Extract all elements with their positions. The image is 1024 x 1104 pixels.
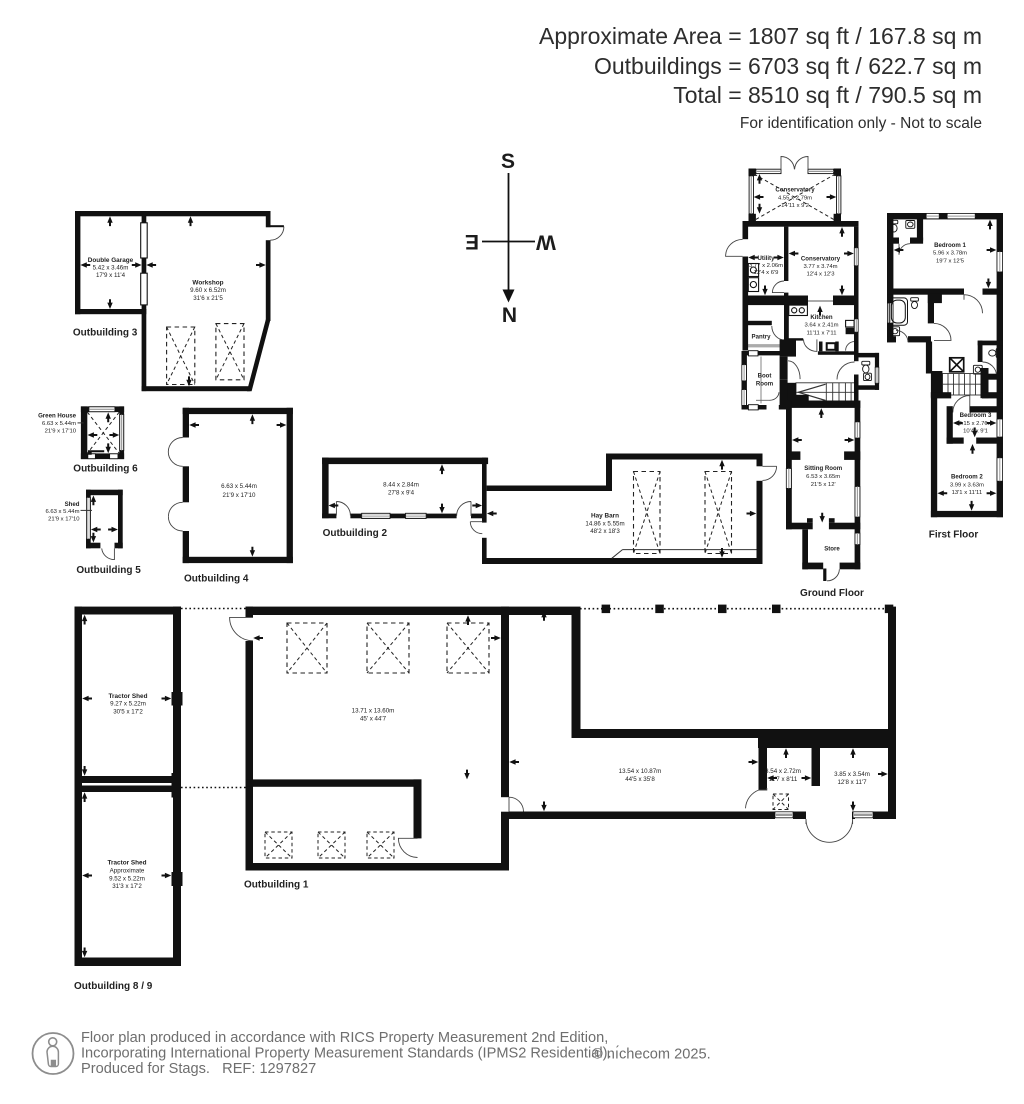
svg-text:3.85 x 3.54m: 3.85 x 3.54m (834, 771, 870, 778)
svg-text:Green House: Green House (38, 413, 77, 420)
svg-text:30'5 x 17'2: 30'5 x 17'2 (113, 708, 143, 715)
svg-text:Approximate: Approximate (110, 867, 145, 874)
svg-text:11'11 x 7'11: 11'11 x 7'11 (806, 330, 836, 336)
svg-text:13.54 x 10.87m: 13.54 x 10.87m (619, 768, 662, 775)
svg-text:N: N (502, 304, 517, 327)
svg-text:21'9 x 17'10: 21'9 x 17'10 (223, 492, 257, 499)
svg-text:9.60 x 6.52m: 9.60 x 6.52m (190, 287, 226, 294)
svg-text:W: W (536, 231, 556, 254)
svg-text:S: S (501, 150, 515, 173)
svg-text:48'2 x 18'3: 48'2 x 18'3 (590, 528, 620, 535)
svg-text:Tractor Shed: Tractor Shed (108, 693, 147, 700)
svg-text:31'6 x 21'5: 31'6 x 21'5 (193, 295, 223, 302)
svg-text:Produced for Stags. REF: 129: Produced for Stags. REF: 1297827 (81, 1061, 316, 1077)
svg-text:Conservatory: Conservatory (801, 255, 841, 262)
svg-text:45' x 44'7: 45' x 44'7 (360, 716, 387, 723)
svg-text:Conservatory: Conservatory (775, 187, 815, 194)
svg-text:Workshop: Workshop (192, 280, 223, 287)
svg-text:17'9 x 11'4: 17'9 x 11'4 (96, 272, 126, 279)
svg-text:Boot: Boot (758, 373, 772, 380)
svg-text:Outbuilding 3: Outbuilding 3 (73, 328, 138, 339)
svg-text:Outbuilding 2: Outbuilding 2 (323, 528, 388, 539)
svg-text:Approximate Area = 1807 sq ft: Approximate Area = 1807 sq ft / 167.8 sq… (539, 23, 982, 49)
svg-text:Total = 8510 sq ft / 790.5 sq: Total = 8510 sq ft / 790.5 sq m (673, 82, 982, 108)
svg-text:9.27 x 5.22m: 9.27 x 5.22m (110, 701, 146, 708)
svg-text:3.99 x 3.63m: 3.99 x 3.63m (950, 482, 984, 488)
svg-text:Outbuilding 6: Outbuilding 6 (73, 463, 138, 474)
svg-text:4.55 x 2.79m: 4.55 x 2.79m (778, 195, 812, 201)
svg-text:Outbuilding 1: Outbuilding 1 (244, 880, 309, 891)
svg-text:Store: Store (824, 546, 840, 553)
svg-text:First Floor: First Floor (929, 530, 979, 541)
svg-text:Sitting Room: Sitting Room (804, 465, 842, 472)
svg-text:6.63 x 5.44m: 6.63 x 5.44m (221, 483, 257, 490)
svg-text:12'4 x 6'9: 12'4 x 6'9 (754, 270, 779, 276)
svg-text:© nı́checom 2025.: © nı́checom 2025. (592, 1046, 711, 1063)
svg-text:Bedroom 1: Bedroom 1 (934, 242, 966, 249)
svg-text:Tractor Shed: Tractor Shed (107, 860, 146, 867)
svg-text:Double Garage: Double Garage (88, 257, 134, 264)
svg-text:Ground Floor: Ground Floor (800, 588, 864, 599)
svg-text:Incorporating International Pr: Incorporating International Property Mea… (81, 1046, 612, 1062)
svg-text:3.77 x 2.06m: 3.77 x 2.06m (749, 263, 783, 269)
svg-text:27'8 x 9'4: 27'8 x 9'4 (388, 490, 415, 497)
svg-text:Shed: Shed (65, 501, 80, 508)
svg-text:Bedroom 2: Bedroom 2 (951, 474, 983, 481)
svg-text:21'9 x 17'10: 21'9 x 17'10 (48, 516, 80, 522)
svg-text:21'9 x 17'10: 21'9 x 17'10 (45, 428, 77, 434)
svg-text:3.54 x 2.72m: 3.54 x 2.72m (765, 768, 801, 775)
svg-text:19'7 x 12'5: 19'7 x 12'5 (936, 258, 965, 264)
svg-text:12'4 x 12'3: 12'4 x 12'3 (806, 271, 835, 277)
svg-text:For identification only - Not: For identification only - Not to scale (740, 115, 982, 132)
svg-text:3.77 x 3.74m: 3.77 x 3.74m (803, 264, 837, 270)
svg-text:31'3 x 17'2: 31'3 x 17'2 (112, 883, 142, 890)
svg-text:6.53 x 3.65m: 6.53 x 3.65m (806, 474, 840, 480)
svg-text:13'1 x 11'11: 13'1 x 11'11 (952, 490, 983, 496)
svg-text:14'11 x 9'2: 14'11 x 9'2 (781, 203, 809, 209)
svg-text:Hay Barn: Hay Barn (591, 513, 619, 520)
svg-text:9.52 x 5.22m: 9.52 x 5.22m (109, 875, 145, 882)
svg-text:Floor plan produced in accorda: Floor plan produced in accordance with R… (81, 1030, 608, 1046)
svg-text:12'8 x 11'7: 12'8 x 11'7 (837, 779, 867, 786)
svg-text:Outbuilding 4: Outbuilding 4 (184, 574, 249, 585)
svg-text:8.44 x 2.84m: 8.44 x 2.84m (383, 482, 419, 489)
svg-text:Kitchen: Kitchen (810, 314, 833, 321)
svg-text:6.63 x 5.44m: 6.63 x 5.44m (42, 421, 76, 427)
svg-text:14.86 x 5.55m: 14.86 x 5.55m (585, 520, 624, 527)
svg-text:5.96 x 3.78m: 5.96 x 3.78m (933, 251, 967, 257)
svg-text:Utility: Utility (758, 255, 776, 262)
svg-text:Room: Room (756, 381, 774, 388)
svg-text:3.64 x 2.41m: 3.64 x 2.41m (804, 323, 838, 329)
svg-text:E: E (465, 230, 479, 253)
svg-text:Bedroom 3: Bedroom 3 (960, 412, 992, 419)
svg-text:13.71 x 13.60m: 13.71 x 13.60m (352, 708, 395, 715)
svg-text:21'5 x 12': 21'5 x 12' (811, 482, 836, 488)
svg-text:Pantry: Pantry (752, 334, 772, 341)
svg-text:Outbuilding 5: Outbuilding 5 (76, 565, 141, 576)
svg-text:44'5 x 35'8: 44'5 x 35'8 (625, 776, 655, 783)
svg-text:6.63 x 5.44m: 6.63 x 5.44m (45, 509, 79, 515)
svg-text:5.42 x 3.46m: 5.42 x 3.46m (93, 265, 129, 272)
svg-text:Outbuildings = 6703 sq ft / 62: Outbuildings = 6703 sq ft / 622.7 sq m (594, 53, 982, 79)
svg-text:Outbuilding 8 / 9: Outbuilding 8 / 9 (74, 981, 153, 992)
